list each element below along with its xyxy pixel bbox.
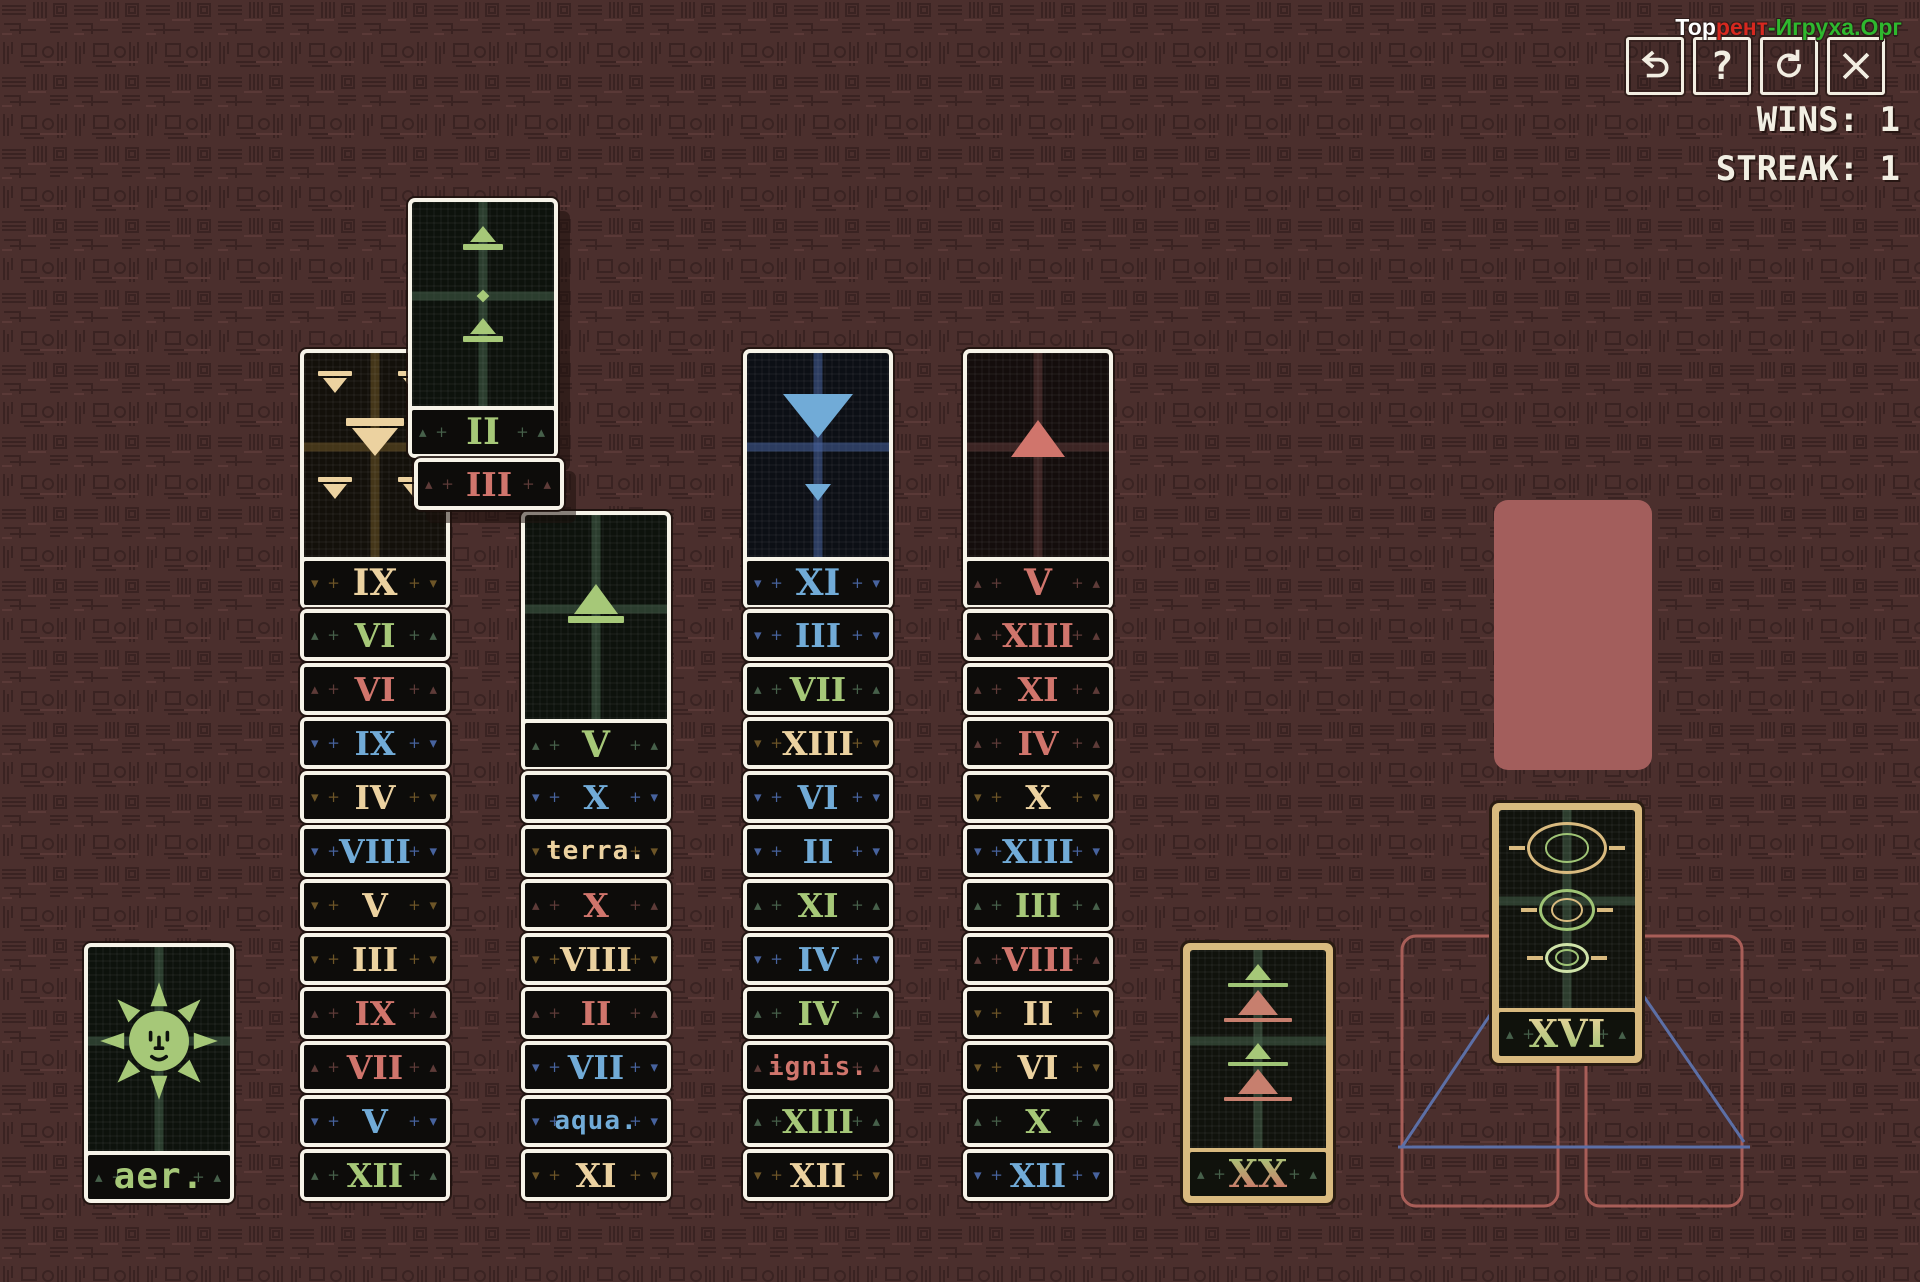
close-button[interactable]	[1827, 37, 1885, 95]
card-label-band: ▾ + VIII + ▾	[525, 937, 667, 981]
band-side-ornament: ▾ +	[754, 574, 785, 592]
card-rank: V	[362, 1105, 388, 1138]
card-rank: XI	[1017, 673, 1058, 706]
band-side-ornament: ▴ +	[754, 1112, 785, 1130]
band-side-ornament: + ▾	[408, 788, 439, 806]
card-label-band: ▴ + XI + ▴	[747, 883, 889, 927]
card-band-X[interactable]: ▾ + X + ▾	[521, 771, 671, 823]
card-rank: VI	[354, 619, 395, 652]
card-band-ignis[interactable]: ▴ + ignis. + ▴	[743, 1041, 893, 1093]
card-band-XI[interactable]: ▾ + XI + ▾	[521, 1149, 671, 1201]
card-rank: IX	[354, 997, 395, 1030]
card-label-band: ▾ + VII + ▾	[525, 1045, 667, 1089]
card-label-band: ▾ + II + ▾	[967, 991, 1109, 1035]
card-band-X[interactable]: ▴ + X + ▴	[521, 879, 671, 931]
card-rank: IV	[1017, 727, 1058, 760]
band-side-ornament: ▾ +	[974, 788, 1005, 806]
card-rank: VI	[354, 673, 395, 706]
column-3: ▾ + XI + ▾ ▾ + III + ▾ ▴ + VII + ▴ ▾ + X…	[743, 349, 893, 1203]
band-side-ornament: + ▾	[851, 734, 882, 752]
game-screen: Торрент-Игруха.Орг ?	[0, 0, 1920, 1282]
band-side-ornament: ▾ +	[532, 1166, 563, 1184]
band-side-ornament: + ▴	[408, 680, 439, 698]
card-V[interactable]: ▴ + V + ▴	[963, 349, 1113, 609]
card-band-terra[interactable]: ▾ + terra. + ▾	[521, 825, 671, 877]
card-label-band: ▾ + XI + ▾	[525, 1153, 667, 1197]
card-rank: terra.	[546, 838, 646, 864]
card-XX[interactable]: ▴ + XX + ▴	[1183, 943, 1333, 1203]
card-band-V[interactable]: ▾ + V + ▾	[300, 879, 450, 931]
card-label-band: ▾ + V + ▾	[304, 883, 446, 927]
band-side-ornament: ▾ +	[754, 950, 785, 968]
watermark-part: -Игруха.Орг	[1768, 14, 1902, 40]
band-side-ornament: ▾ +	[754, 626, 785, 644]
card-band-II[interactable]: ▾ + II + ▾	[963, 987, 1113, 1039]
card-label-band: ▾ + V + ▾	[304, 1099, 446, 1143]
band-side-ornament: ▴ +	[311, 626, 342, 644]
band-side-ornament: + ▾	[629, 1058, 660, 1076]
card-label-band: ▴ + VI + ▴	[304, 667, 446, 711]
card-V[interactable]: ▴ + V + ▴	[521, 511, 671, 771]
card-label-band: ▴ + II + ▴	[525, 991, 667, 1035]
band-side-ornament: + ▾	[851, 842, 882, 860]
card-label-band: ▴ + X + ▴	[525, 883, 667, 927]
band-side-ornament: + ▴	[516, 423, 547, 441]
pile-aer: ▴ + aer. + ▴	[84, 943, 234, 1203]
card-band-III[interactable]: ▾ + III + ▾	[743, 609, 893, 661]
card-rank: III	[352, 943, 398, 976]
card-rank: III	[1015, 889, 1061, 922]
card-rank: V	[582, 727, 610, 763]
card-band-VI[interactable]: ▴ + VI + ▴	[300, 609, 450, 661]
card-rank: XIII	[1002, 835, 1074, 868]
card-label-band: ▴ + ignis. + ▴	[747, 1045, 889, 1089]
band-side-ornament: + ▴	[851, 1112, 882, 1130]
band-side-ornament: ▴ +	[1197, 1165, 1228, 1183]
card-label-band: ▴ + X + ▴	[967, 1099, 1109, 1143]
card-rank: XI	[796, 565, 841, 601]
card-rank: XIII	[782, 1105, 854, 1138]
card-rank: II	[581, 997, 612, 1030]
card-rank: XII	[1010, 1159, 1066, 1192]
card-II[interactable]: ▴ + II + ▴	[408, 198, 558, 458]
band-side-ornament: + ▴	[1071, 1112, 1102, 1130]
band-side-ornament: ▴ +	[974, 1112, 1005, 1130]
card-band-XIII[interactable]: ▴ + XIII + ▴	[743, 1095, 893, 1147]
card-xvi[interactable]: ▴ + XVI + ▴	[1492, 803, 1642, 1063]
help-button[interactable]: ?	[1693, 37, 1751, 95]
undo-button[interactable]	[1626, 37, 1684, 95]
band-side-ornament: ▴ +	[974, 896, 1005, 914]
band-side-ornament: + ▾	[1071, 788, 1102, 806]
band-side-ornament: + ▴	[1288, 1165, 1319, 1183]
card-band-aqua[interactable]: ▾ + aqua. + ▾	[521, 1095, 671, 1147]
card-label-band: ▴ + VI + ▴	[304, 613, 446, 657]
card-rank: X	[583, 889, 609, 922]
toolbar: ?	[1626, 37, 1885, 95]
card-band-VI[interactable]: ▾ + VI + ▾	[963, 1041, 1113, 1093]
held-card-stack[interactable]: ▴ + II + ▴ ▴ + III + ▴	[408, 198, 564, 512]
band-side-ornament: ▾ +	[974, 842, 1005, 860]
band-side-ornament: ▴ +	[311, 680, 342, 698]
band-side-ornament: ▾ +	[754, 788, 785, 806]
card-rank: V	[1024, 565, 1052, 601]
card-label-band: ▾ + IV + ▾	[304, 775, 446, 819]
band-side-ornament: + ▾	[629, 950, 660, 968]
card-rank: II	[466, 414, 500, 450]
band-side-ornament: + ▴	[1071, 574, 1102, 592]
card-label-band: ▴ + XIII + ▴	[747, 1099, 889, 1143]
band-side-ornament: + ▾	[408, 842, 439, 860]
band-side-ornament: ▴ +	[532, 1004, 563, 1022]
card-rank: aqua.	[554, 1108, 637, 1134]
card-rank: III	[795, 619, 841, 652]
card-rank: XIII	[782, 727, 854, 760]
card-band-VIII[interactable]: ▾ + VIII + ▾	[300, 825, 450, 877]
band-side-ornament: + ▾	[851, 574, 882, 592]
band-side-ornament: ▾ +	[532, 788, 563, 806]
band-side-ornament: + ▾	[408, 896, 439, 914]
card-rank: ignis.	[768, 1054, 868, 1080]
card-band-VII[interactable]: ▴ + VII + ▴	[300, 1041, 450, 1093]
card-art	[1190, 950, 1326, 1148]
band-side-ornament: ▴ +	[754, 680, 785, 698]
card-rank: V	[362, 889, 388, 922]
card-band-VII[interactable]: ▾ + VII + ▾	[521, 1041, 671, 1093]
card-band-X[interactable]: ▾ + X + ▾	[963, 771, 1113, 823]
card-rank: IX	[354, 727, 395, 760]
card-label-band: ▴ + XII + ▴	[304, 1153, 446, 1197]
card-rank: VII	[790, 673, 846, 706]
card-rank: VI	[797, 781, 838, 814]
card-label-band: ▴ + VII + ▴	[747, 667, 889, 711]
card-art	[525, 515, 667, 719]
card-label-band: ▴ + VII + ▴	[304, 1045, 446, 1089]
card-label-band: ▾ + XIII + ▾	[967, 829, 1109, 873]
band-side-ornament: ▾ +	[532, 950, 563, 968]
card-rank: VIII	[339, 835, 411, 868]
card-label-band: ▴ + XX + ▴	[1190, 1152, 1326, 1196]
band-side-ornament: + ▴	[1071, 896, 1102, 914]
band-side-ornament: + ▾	[1071, 1058, 1102, 1076]
card-label-band: ▴ + III + ▴	[967, 883, 1109, 927]
band-side-ornament: ▴ +	[974, 626, 1005, 644]
card-rank: II	[803, 835, 834, 868]
restart-arrow-icon	[1772, 49, 1806, 83]
band-side-ornament: + ▴	[1071, 950, 1102, 968]
site-watermark: Торрент-Игруха.Орг	[1675, 14, 1902, 41]
card-label-band: ▴ + VIII + ▴	[967, 937, 1109, 981]
card-band-XII[interactable]: ▾ + XII + ▾	[963, 1149, 1113, 1201]
card-band-III[interactable]: ▴ + III + ▴	[963, 879, 1113, 931]
card-label-band: ▾ + IV + ▾	[747, 937, 889, 981]
card-rank: VII	[568, 1051, 624, 1084]
card-art	[1499, 810, 1635, 1008]
band-side-ornament: ▴ +	[532, 736, 563, 754]
band-side-ornament: ▴ +	[532, 896, 563, 914]
card-label-band: ▾ + IX + ▾	[304, 561, 446, 605]
close-x-icon	[1839, 49, 1873, 83]
card-label-band: ▾ + IX + ▾	[304, 721, 446, 765]
card-label-band: ▴ + IV + ▴	[747, 991, 889, 1035]
card-label-band: ▾ + XI + ▾	[747, 561, 889, 605]
card-XVI[interactable]: ▴ + XVI + ▴	[1492, 803, 1642, 1063]
band-side-ornament: ▾ +	[532, 1058, 563, 1076]
band-side-ornament: + ▴	[408, 1004, 439, 1022]
band-side-ornament: + ▾	[851, 788, 882, 806]
card-art	[967, 353, 1109, 557]
band-side-ornament: ▴ +	[311, 1166, 342, 1184]
card-band-IV[interactable]: ▴ + IV + ▴	[963, 717, 1113, 769]
band-side-ornament: + ▾	[851, 626, 882, 644]
free-cell[interactable]	[1494, 500, 1652, 770]
card-band-II[interactable]: ▾ + II + ▾	[743, 825, 893, 877]
card-label-band: ▴ + aer. + ▴	[88, 1155, 230, 1199]
card-rank: VI	[1017, 1051, 1058, 1084]
undo-arrow-icon	[1638, 49, 1672, 83]
band-side-ornament: ▾ +	[311, 1112, 342, 1130]
band-side-ornament: + ▴	[522, 475, 553, 493]
card-label-band: ▾ + XII + ▾	[967, 1153, 1109, 1197]
card-label-band: ▾ + VI + ▾	[967, 1045, 1109, 1089]
card-label-band: ▴ + XI + ▴	[967, 667, 1109, 711]
card-band-XII[interactable]: ▾ + XII + ▾	[743, 1149, 893, 1201]
band-side-ornament: + ▾	[851, 950, 882, 968]
card-rank: IX	[353, 565, 398, 601]
band-side-ornament: ▾ +	[311, 896, 342, 914]
restart-button[interactable]	[1760, 37, 1818, 95]
card-label-band: ▾ + VIII + ▾	[304, 829, 446, 873]
card-rank: X	[1025, 1105, 1051, 1138]
streak-counter: STREAK: 1	[1716, 145, 1900, 194]
band-side-ornament: + ▾	[629, 1166, 660, 1184]
card-rank: IV	[354, 781, 395, 814]
card-band-IX[interactable]: ▴ + IX + ▴	[300, 987, 450, 1039]
card-label-band: ▾ + X + ▾	[967, 775, 1109, 819]
card-label-band: ▴ + II + ▴	[412, 410, 554, 454]
band-side-ornament: + ▴	[629, 1004, 660, 1022]
card-band-II[interactable]: ▴ + II + ▴	[521, 987, 671, 1039]
card-rank: IV	[797, 997, 838, 1030]
card-band-VI[interactable]: ▴ + VI + ▴	[300, 663, 450, 715]
band-side-ornament: ▴ +	[311, 1058, 342, 1076]
band-side-ornament: ▾ +	[311, 734, 342, 752]
wins-counter: WINS: 1	[1716, 96, 1900, 145]
card-art	[747, 353, 889, 557]
column-4: ▴ + V + ▴ ▴ + XIII + ▴ ▴ + XI + ▴ ▴ + IV…	[963, 349, 1113, 1203]
band-side-ornament: + ▴	[851, 896, 882, 914]
card-rank: XX	[1229, 1155, 1288, 1193]
card-band-VIII[interactable]: ▾ + VIII + ▾	[521, 933, 671, 985]
band-side-ornament: + ▾	[851, 1166, 882, 1184]
band-side-ornament: ▾ +	[974, 1058, 1005, 1076]
card-rank: XII	[790, 1159, 846, 1192]
card-label-band: ▴ + V + ▴	[967, 561, 1109, 605]
card-band-VII[interactable]: ▴ + VII + ▴	[743, 663, 893, 715]
band-side-ornament: ▾ +	[311, 788, 342, 806]
band-side-ornament: + ▴	[1071, 680, 1102, 698]
card-band-XI[interactable]: ▴ + XI + ▴	[743, 879, 893, 931]
card-rank: XVI	[1529, 1015, 1606, 1053]
band-side-ornament: ▴ +	[419, 423, 450, 441]
card-rank: aer.	[114, 1159, 205, 1195]
band-side-ornament: + ▾	[629, 788, 660, 806]
card-band-XI[interactable]: ▴ + XI + ▴	[963, 663, 1113, 715]
band-side-ornament: + ▴	[851, 1004, 882, 1022]
band-side-ornament: + ▴	[629, 736, 660, 754]
band-side-ornament: ▴ +	[974, 734, 1005, 752]
card-label-band: ▾ + terra. + ▾	[525, 829, 667, 873]
watermark-part: рент	[1716, 14, 1768, 40]
card-rank: IV	[797, 943, 838, 976]
band-side-ornament: + ▴	[1071, 626, 1102, 644]
card-aer[interactable]: ▴ + aer. + ▴	[84, 943, 234, 1203]
band-side-ornament: ▾ +	[754, 1166, 785, 1184]
card-rank: III	[466, 468, 512, 501]
card-rank: VIII	[560, 943, 632, 976]
band-side-ornament: + ▾	[408, 1112, 439, 1130]
card-band-IV[interactable]: ▾ + IV + ▾	[743, 933, 893, 985]
band-side-ornament: + ▾	[1071, 1166, 1102, 1184]
card-rank: XI	[797, 889, 838, 922]
band-side-ornament: + ▾	[408, 734, 439, 752]
card-rank: XI	[575, 1159, 616, 1192]
card-band-IV[interactable]: ▴ + IV + ▴	[743, 987, 893, 1039]
card-art	[412, 202, 554, 406]
band-side-ornament: + ▾	[408, 950, 439, 968]
band-side-ornament: + ▴	[408, 1166, 439, 1184]
band-side-ornament: ▾ +	[974, 1166, 1005, 1184]
card-label-band: ▾ + III + ▾	[304, 937, 446, 981]
card-band-X[interactable]: ▴ + X + ▴	[963, 1095, 1113, 1147]
watermark-part: Тор	[1675, 14, 1716, 40]
card-label-band: ▴ + III + ▴	[418, 462, 560, 506]
card-label-band: ▾ + II + ▾	[747, 829, 889, 873]
card-rank: VIII	[1002, 943, 1074, 976]
card-XI[interactable]: ▾ + XI + ▾	[743, 349, 893, 609]
card-band-IV[interactable]: ▾ + IV + ▾	[300, 771, 450, 823]
card-label-band: ▴ + V + ▴	[525, 723, 667, 767]
band-side-ornament: ▴ +	[425, 475, 456, 493]
card-label-band: ▾ + XII + ▾	[747, 1153, 889, 1197]
card-band-XIII[interactable]: ▾ + XIII + ▾	[743, 717, 893, 769]
card-band-VIII[interactable]: ▴ + VIII + ▴	[963, 933, 1113, 985]
band-side-ornament: ▴ +	[974, 680, 1005, 698]
card-rank: XIII	[1002, 619, 1074, 652]
card-band-IX[interactable]: ▾ + IX + ▾	[300, 717, 450, 769]
card-band-III[interactable]: ▴ + III + ▴	[414, 458, 564, 510]
band-side-ornament: ▾ +	[754, 734, 785, 752]
card-rank: XII	[347, 1159, 403, 1192]
band-side-ornament: + ▴	[408, 626, 439, 644]
score-panel: WINS: 1 STREAK: 1	[1716, 96, 1900, 195]
band-side-ornament: + ▾	[1071, 1004, 1102, 1022]
band-side-ornament: + ▴	[851, 680, 882, 698]
card-label-band: ▴ + XIII + ▴	[967, 613, 1109, 657]
card-rank: II	[1023, 997, 1054, 1030]
card-label-band: ▾ + aqua. + ▾	[525, 1099, 667, 1143]
band-side-ornament: ▴ +	[754, 896, 785, 914]
band-side-ornament: ▾ +	[311, 574, 342, 592]
band-side-ornament: ▾ +	[311, 842, 342, 860]
card-label-band: ▾ + III + ▾	[747, 613, 889, 657]
card-label-band: ▴ + IV + ▴	[967, 721, 1109, 765]
card-label-band: ▾ + XIII + ▾	[747, 721, 889, 765]
card-band-XIII[interactable]: ▴ + XIII + ▴	[963, 609, 1113, 661]
card-label-band: ▾ + X + ▾	[525, 775, 667, 819]
card-band-XIII[interactable]: ▾ + XIII + ▾	[963, 825, 1113, 877]
card-art	[88, 947, 230, 1151]
card-xx[interactable]: ▴ + XX + ▴	[1183, 943, 1333, 1203]
question-mark-icon: ?	[1711, 47, 1734, 85]
card-label-band: ▾ + VI + ▾	[747, 775, 889, 819]
band-side-ornament: ▴ +	[974, 574, 1005, 592]
band-side-ornament: ▴ +	[754, 1004, 785, 1022]
card-rank: X	[583, 781, 609, 814]
column-2: ▴ + V + ▴ ▾ + X + ▾ ▾ + terra. + ▾ ▴ + X…	[521, 511, 671, 1203]
band-side-ornament: ▴ +	[311, 1004, 342, 1022]
band-side-ornament: + ▾	[408, 574, 439, 592]
band-side-ornament: ▾ +	[754, 842, 785, 860]
card-rank: X	[1025, 781, 1051, 814]
band-side-ornament: ▾ +	[974, 1004, 1005, 1022]
sun-face-art	[99, 981, 219, 1101]
card-band-VI[interactable]: ▾ + VI + ▾	[743, 771, 893, 823]
card-band-V[interactable]: ▾ + V + ▾	[300, 1095, 450, 1147]
band-side-ornament: + ▴	[629, 896, 660, 914]
band-side-ornament: + ▴	[408, 1058, 439, 1076]
card-label-band: ▴ + XVI + ▴	[1499, 1012, 1635, 1056]
card-label-band: ▴ + IX + ▴	[304, 991, 446, 1035]
card-band-III[interactable]: ▾ + III + ▾	[300, 933, 450, 985]
band-side-ornament: ▾ +	[311, 950, 342, 968]
band-side-ornament: + ▴	[1071, 734, 1102, 752]
band-side-ornament: + ▾	[1071, 842, 1102, 860]
band-side-ornament: ▴ +	[974, 950, 1005, 968]
card-rank: VII	[347, 1051, 403, 1084]
card-band-XII[interactable]: ▴ + XII + ▴	[300, 1149, 450, 1201]
